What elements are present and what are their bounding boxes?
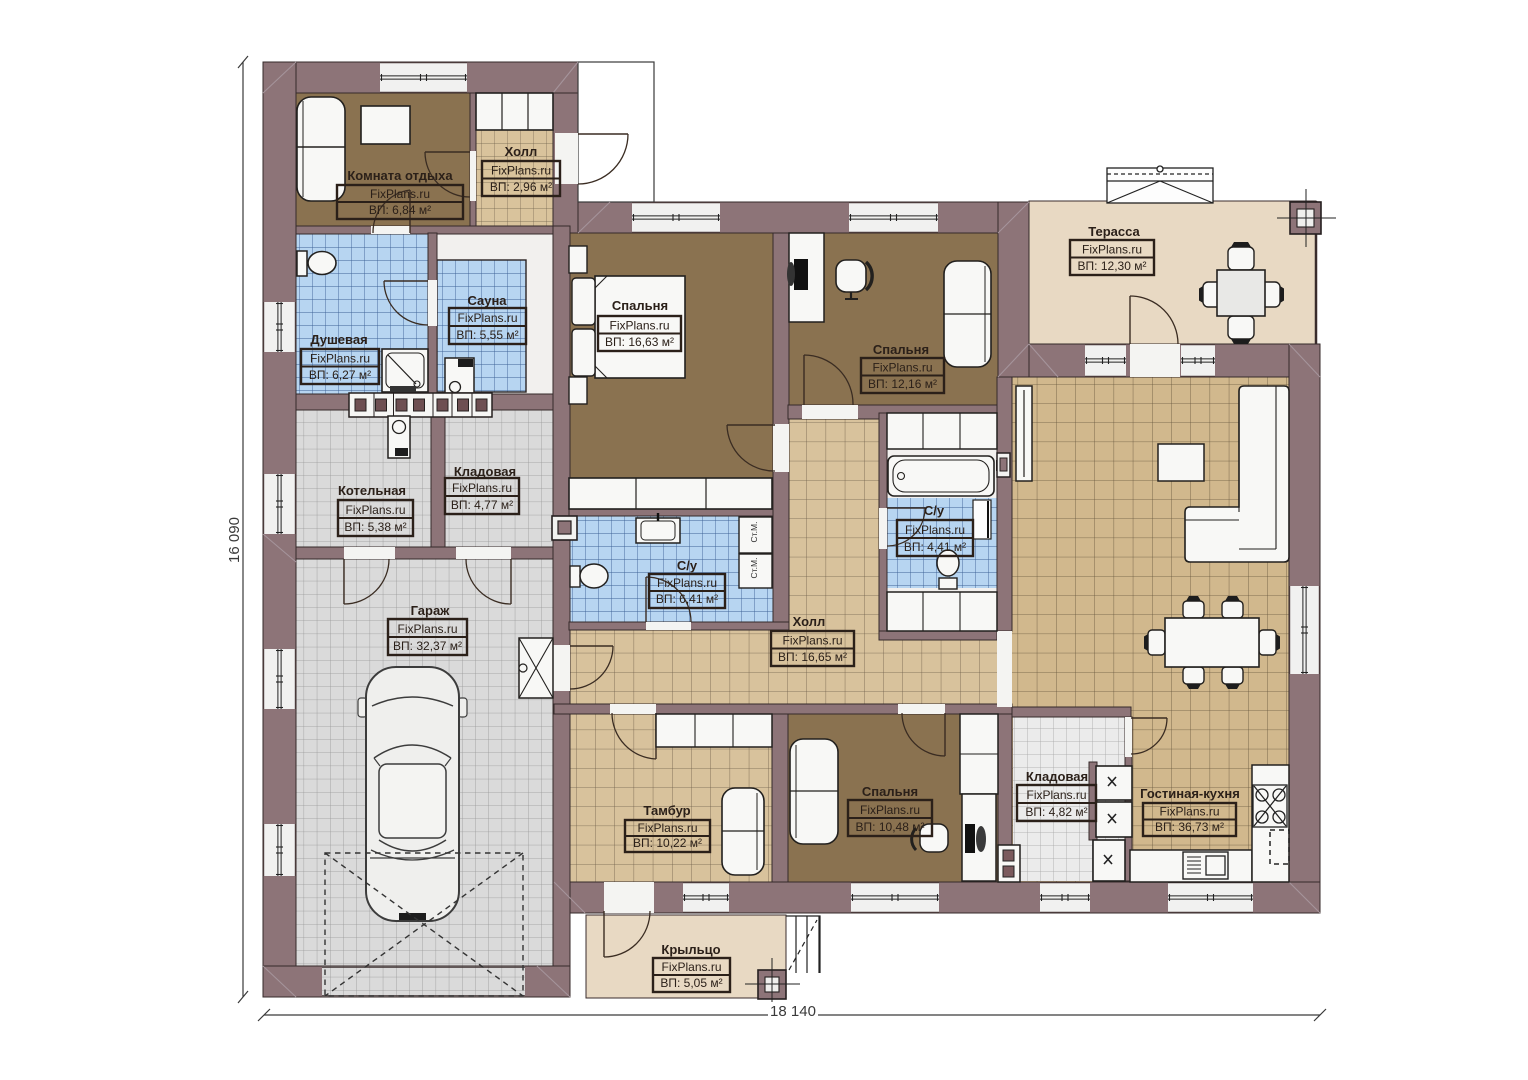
- svg-text:ВП: 5,05 м²: ВП: 5,05 м²: [660, 976, 722, 990]
- svg-text:FixPlans.ru: FixPlans.ru: [872, 361, 932, 375]
- svg-text:FixPlans.ru: FixPlans.ru: [1082, 243, 1142, 257]
- svg-text:Спальня: Спальня: [612, 298, 668, 313]
- svg-text:Холл: Холл: [793, 614, 826, 629]
- svg-text:ВП: 16,63 м²: ВП: 16,63 м²: [605, 335, 674, 349]
- svg-text:ВП: 5,55 м²: ВП: 5,55 м²: [456, 328, 518, 342]
- svg-text:Терасса: Терасса: [1088, 224, 1140, 239]
- svg-text:Ст.М.: Ст.М.: [749, 522, 759, 543]
- svg-text:Холл: Холл: [505, 144, 538, 159]
- svg-text:ВП: 10,22 м²: ВП: 10,22 м²: [633, 836, 702, 850]
- svg-text:ВП: 6,84 м²: ВП: 6,84 м²: [369, 203, 431, 217]
- svg-text:ВП: 36,73 м²: ВП: 36,73 м²: [1155, 820, 1224, 834]
- svg-text:ВП: 6,41 м²: ВП: 6,41 м²: [656, 592, 718, 606]
- svg-text:16 090: 16 090: [226, 517, 243, 563]
- svg-text:Тамбур: Тамбур: [643, 803, 690, 818]
- svg-text:ВП: 10,48 м²: ВП: 10,48 м²: [856, 820, 925, 834]
- svg-text:Ст.М.: Ст.М.: [749, 558, 759, 579]
- svg-text:Спальня: Спальня: [873, 342, 929, 357]
- svg-text:Кладовая: Кладовая: [454, 464, 516, 479]
- svg-text:ВП: 16,65 м²: ВП: 16,65 м²: [778, 650, 847, 664]
- svg-text:ВП: 12,30 м²: ВП: 12,30 м²: [1078, 259, 1147, 273]
- svg-text:Кладовая: Кладовая: [1026, 769, 1088, 784]
- svg-text:FixPlans.ru: FixPlans.ru: [860, 803, 920, 817]
- svg-text:FixPlans.ru: FixPlans.ru: [457, 311, 517, 325]
- svg-text:ВП: 4,41 м²: ВП: 4,41 м²: [904, 540, 966, 554]
- svg-text:FixPlans.ru: FixPlans.ru: [609, 319, 669, 333]
- svg-text:Котельная: Котельная: [338, 483, 406, 498]
- svg-text:Гараж: Гараж: [411, 603, 451, 618]
- svg-text:FixPlans.ru: FixPlans.ru: [657, 576, 717, 590]
- svg-text:FixPlans.ru: FixPlans.ru: [491, 164, 551, 178]
- svg-text:Комната отдыха: Комната отдыха: [347, 168, 453, 183]
- svg-text:FixPlans.ru: FixPlans.ru: [397, 622, 457, 636]
- svg-text:18 140: 18 140: [770, 1003, 816, 1020]
- svg-text:FixPlans.ru: FixPlans.ru: [345, 503, 405, 517]
- svg-text:ВП: 6,27 м²: ВП: 6,27 м²: [309, 368, 371, 382]
- svg-text:С/у: С/у: [924, 503, 945, 518]
- svg-text:ВП: 32,37 м²: ВП: 32,37 м²: [393, 639, 462, 653]
- svg-text:Душевая: Душевая: [310, 332, 367, 347]
- svg-text:FixPlans.ru: FixPlans.ru: [637, 821, 697, 835]
- svg-text:FixPlans.ru: FixPlans.ru: [310, 352, 370, 366]
- svg-text:FixPlans.ru: FixPlans.ru: [1026, 788, 1086, 802]
- svg-text:Спальня: Спальня: [862, 784, 918, 799]
- svg-text:ВП: 12,16 м²: ВП: 12,16 м²: [868, 377, 937, 391]
- svg-text:Крыльцо: Крыльцо: [661, 942, 720, 957]
- svg-text:FixPlans.ru: FixPlans.ru: [905, 523, 965, 537]
- svg-text:С/у: С/у: [677, 558, 698, 573]
- svg-text:FixPlans.ru: FixPlans.ru: [452, 481, 512, 495]
- svg-text:ВП: 4,77 м²: ВП: 4,77 м²: [451, 498, 513, 512]
- svg-text:Сауна: Сауна: [467, 293, 507, 308]
- svg-text:FixPlans.ru: FixPlans.ru: [1159, 805, 1219, 819]
- svg-text:FixPlans.ru: FixPlans.ru: [661, 960, 721, 974]
- svg-text:FixPlans.ru: FixPlans.ru: [782, 634, 842, 648]
- svg-text:Гостиная-кухня: Гостиная-кухня: [1140, 786, 1240, 801]
- svg-text:ВП: 4,82 м²: ВП: 4,82 м²: [1025, 805, 1087, 819]
- svg-text:ВП: 2,96 м²: ВП: 2,96 м²: [490, 180, 552, 194]
- svg-text:FixPlans.ru: FixPlans.ru: [370, 187, 430, 201]
- svg-text:ВП: 5,38 м²: ВП: 5,38 м²: [344, 520, 406, 534]
